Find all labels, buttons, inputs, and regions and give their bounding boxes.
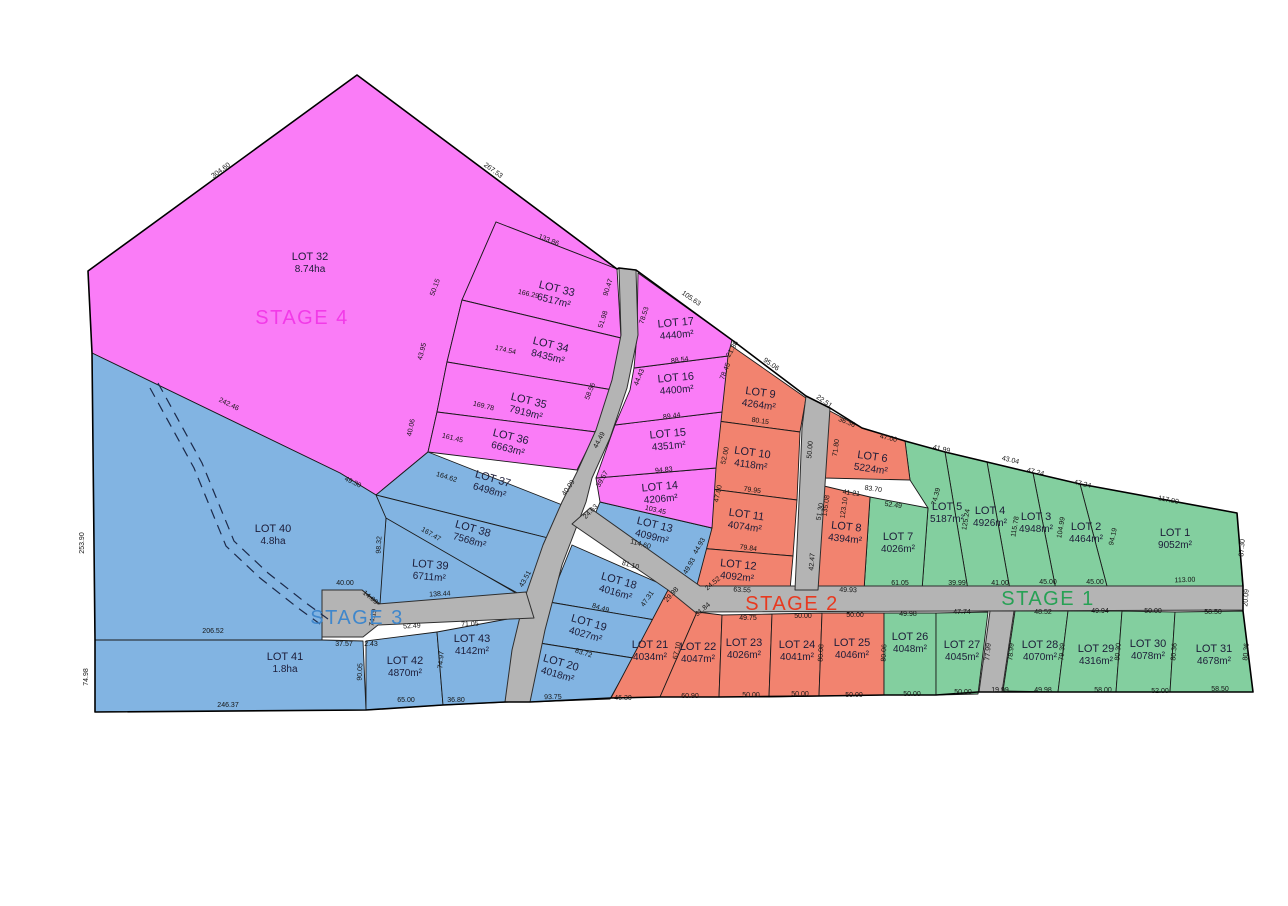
lot-number-text: LOT 25	[834, 637, 871, 649]
lot-area-text: 8.74ha	[295, 264, 326, 275]
dimension-label: 39.99	[948, 580, 966, 587]
dimension-label: 253.90	[79, 532, 86, 554]
dimension-label: 65.00	[397, 697, 415, 704]
dimension-label: 58.50	[1204, 609, 1222, 616]
dimension-label: 50.00	[954, 689, 972, 696]
lot-area-text: 4048m²	[893, 644, 928, 655]
dimension-label: 71.05	[461, 621, 479, 629]
lot-area-text: 4045m²	[945, 652, 980, 663]
lot-number-text: LOT 28	[1022, 639, 1059, 651]
lot-area-text: 4026m²	[727, 650, 762, 661]
dimension-label: 74.98	[83, 668, 90, 686]
dimension-label: 49.98	[899, 611, 917, 618]
stage-4-label: STAGE 4	[255, 307, 349, 329]
dimension-label: 50.00	[846, 612, 864, 619]
dimension-label: 20.09	[1242, 589, 1251, 607]
lot-area-text: 4070m²	[1023, 652, 1058, 663]
lot-number-text: LOT 2	[1071, 521, 1101, 533]
lot-number-text: LOT 22	[680, 641, 717, 653]
dimension-label: 46.30	[614, 695, 632, 702]
lot-area-text: 4316m²	[1079, 656, 1114, 667]
lot-10-label: LOT 104118m²	[732, 445, 771, 474]
dimension-label: 49.98	[1034, 687, 1052, 694]
lot-number-text: LOT 26	[892, 631, 929, 643]
dimension-label: 50.00	[791, 691, 809, 698]
dimension-label: 80.06	[881, 644, 889, 662]
dimension-label: 2.43	[364, 641, 378, 648]
lot-area-text: 4870m²	[388, 668, 423, 679]
dimension-label: 49.75	[739, 615, 757, 622]
dimension-label: 113.00	[1174, 577, 1195, 585]
lot-number-text: LOT 32	[292, 251, 329, 263]
dimension-label: 58.00	[1094, 687, 1112, 694]
lot-area-text: 4.8ha	[260, 536, 285, 547]
dimension-label: 43.04	[1001, 455, 1020, 466]
dimension-label: 37.57	[335, 641, 353, 648]
dimension-label: 60.90	[681, 693, 699, 700]
lot-area-text: 4948m²	[1019, 524, 1054, 535]
dimension-label: 49.93	[839, 587, 857, 595]
lot-area-text: 5187m²	[930, 514, 965, 525]
dimension-label: 138.44	[429, 590, 451, 598]
subdivision-plan-canvas: LOT 19052m²LOT 24464m²LOT 34948m²LOT 449…	[0, 0, 1288, 906]
dimension-label: 80.08	[818, 644, 826, 662]
dimension-label: 206.52	[202, 628, 224, 635]
dimension-label: 52.00	[1151, 688, 1169, 695]
dimension-label: 98.32	[376, 536, 384, 554]
lot-area-text: 4464m²	[1069, 534, 1104, 545]
subdivision-plan-svg: LOT 19052m²LOT 24464m²LOT 34948m²LOT 449…	[0, 0, 1288, 906]
dimension-label: 50.00	[845, 692, 863, 699]
dimension-label: 50.00	[742, 692, 760, 699]
dimension-label: 41.00	[991, 580, 1009, 587]
dimension-label: 36.80	[447, 697, 465, 704]
lot-8-label: LOT 84394m²	[828, 519, 865, 546]
lot-area-text: 4142m²	[455, 646, 490, 657]
dimension-label: 40.00	[336, 580, 354, 587]
lot-area-text: 4046m²	[835, 650, 870, 661]
lot-number-text: LOT 23	[726, 637, 763, 649]
lot-area-text: 4926m²	[973, 518, 1008, 529]
lot-area-text: 4026m²	[881, 544, 916, 555]
lot-number-text: LOT 21	[632, 639, 669, 651]
lot-area-text: 4047m²	[681, 654, 716, 665]
dimension-label: 61.05	[891, 580, 909, 587]
lot-area-text: 4078m²	[1131, 651, 1166, 662]
stage-2-label: STAGE 2	[745, 593, 839, 615]
lot-number-text: LOT 1	[1160, 527, 1190, 539]
dimension-label: 45.00	[1039, 579, 1057, 586]
lot-number-text: LOT 41	[267, 651, 304, 663]
lot-number-text: LOT 31	[1196, 643, 1233, 655]
dimension-label: 246.37	[217, 702, 239, 709]
lot-area-text: 4034m²	[633, 652, 668, 663]
dimension-label: 47.74	[953, 609, 971, 616]
lot-number-text: LOT 24	[779, 639, 816, 651]
dimension-label: 87.30	[1238, 539, 1247, 557]
lot-number-text: LOT 42	[387, 655, 424, 667]
lot-number-text: LOT 4	[975, 505, 1005, 517]
lot-area-text: 4041m²	[780, 652, 815, 663]
lot-number-text: LOT 3	[1021, 511, 1051, 523]
lot-number-text: LOT 27	[944, 639, 981, 651]
dimension-label: 58.50	[1211, 686, 1229, 693]
dimension-label: 93.75	[544, 694, 562, 702]
dimension-label: 19.99	[991, 687, 1009, 694]
lot-number-text: LOT 29	[1078, 643, 1115, 655]
dimension-label: 52.49	[403, 623, 421, 631]
lot-number-text: LOT 43	[454, 633, 491, 645]
dimension-label: 50.00	[903, 691, 921, 698]
dimension-label: 90.05	[357, 663, 365, 681]
dimension-label: 45.00	[1086, 579, 1104, 586]
lot-number-text: LOT 40	[255, 523, 292, 535]
lot-area-text: 1.8ha	[272, 664, 297, 675]
lot-number-text: LOT 7	[883, 531, 913, 543]
stage-1-label: STAGE 1	[1001, 588, 1095, 610]
lot-area-text: 4678m²	[1197, 656, 1232, 667]
lot-area-text: 9052m²	[1158, 540, 1193, 551]
dimension-label: 50.00	[1144, 608, 1162, 615]
dimension-label: 83.70	[864, 485, 882, 494]
stage-3-label: STAGE 3	[310, 607, 404, 629]
dimension-label: 48.52	[1034, 609, 1052, 616]
lot-number-text: LOT 30	[1130, 638, 1167, 650]
